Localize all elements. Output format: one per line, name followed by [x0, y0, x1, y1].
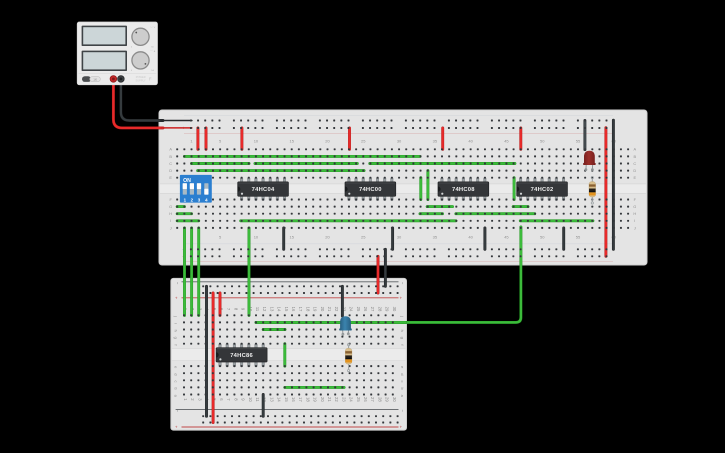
svg-text:10: 10	[254, 138, 259, 143]
svg-text:55: 55	[576, 235, 581, 240]
svg-text:C: C	[169, 161, 172, 166]
svg-text:20: 20	[325, 235, 330, 240]
svg-text:45: 45	[504, 138, 509, 143]
svg-text:A: A	[633, 147, 636, 152]
svg-text:20: 20	[320, 397, 325, 402]
svg-text:i: i	[174, 323, 179, 324]
svg-text:35: 35	[433, 235, 438, 240]
svg-text:74HC86: 74HC86	[230, 353, 253, 359]
svg-text:11: 11	[255, 307, 260, 312]
svg-text:E: E	[169, 175, 172, 180]
svg-text:26: 26	[363, 307, 368, 312]
svg-text:SUPPLY: SUPPLY	[136, 78, 146, 82]
svg-text:D: D	[169, 168, 172, 173]
svg-text:E: E	[633, 175, 636, 180]
svg-text:16: 16	[291, 397, 296, 402]
svg-text:25: 25	[361, 138, 366, 143]
svg-text:40: 40	[468, 235, 473, 240]
svg-text:B: B	[633, 154, 636, 159]
svg-text:21: 21	[327, 307, 332, 312]
svg-text:28: 28	[377, 307, 382, 312]
svg-text:+: +	[175, 295, 178, 300]
svg-text:30: 30	[397, 138, 402, 143]
svg-text:15: 15	[289, 235, 294, 240]
svg-text:H: H	[169, 211, 172, 216]
svg-text:74HC02: 74HC02	[531, 187, 554, 193]
svg-text:I: I	[170, 218, 171, 223]
svg-text:28: 28	[377, 397, 382, 402]
svg-text:22: 22	[334, 397, 339, 402]
svg-text:30: 30	[397, 235, 402, 240]
svg-text:D: D	[633, 168, 636, 173]
svg-text:Ϝ: Ϝ	[149, 77, 152, 82]
svg-text:26: 26	[363, 397, 368, 402]
svg-text:30: 30	[392, 307, 397, 312]
svg-text:1/0: 1/0	[93, 77, 97, 81]
svg-text:27: 27	[370, 397, 375, 402]
svg-text:B: B	[169, 154, 172, 159]
svg-text:23: 23	[341, 397, 346, 402]
svg-text:17: 17	[298, 397, 303, 402]
svg-text:g: g	[400, 337, 405, 339]
svg-text:13: 13	[269, 307, 274, 312]
svg-text:30: 30	[392, 397, 397, 402]
svg-text:12: 12	[262, 307, 267, 312]
svg-text:c: c	[174, 381, 179, 383]
svg-text:j: j	[174, 315, 179, 317]
svg-text:11: 11	[255, 397, 260, 402]
svg-text:13: 13	[269, 397, 274, 402]
svg-text:50: 50	[540, 235, 545, 240]
svg-text:29: 29	[385, 307, 390, 312]
svg-text:15: 15	[289, 138, 294, 143]
svg-text:40: 40	[468, 138, 473, 143]
svg-text:+: +	[400, 295, 403, 300]
svg-text:18: 18	[305, 307, 310, 312]
svg-text:21: 21	[327, 397, 332, 402]
svg-text:19: 19	[313, 397, 318, 402]
svg-text:17: 17	[298, 307, 303, 312]
svg-text:c: c	[400, 381, 405, 383]
svg-text:74HC04: 74HC04	[252, 187, 275, 193]
svg-text:I: I	[634, 218, 635, 223]
svg-text:50: 50	[540, 138, 545, 143]
svg-text:14: 14	[277, 397, 282, 402]
svg-text:20: 20	[325, 138, 330, 143]
svg-text:15: 15	[284, 397, 289, 402]
svg-text:C: C	[633, 161, 636, 166]
svg-text:35: 35	[433, 138, 438, 143]
svg-text:27: 27	[370, 307, 375, 312]
svg-text:55: 55	[576, 138, 581, 143]
svg-text:15: 15	[284, 307, 289, 312]
svg-text:g: g	[174, 337, 179, 339]
svg-text:16: 16	[291, 307, 296, 312]
svg-text:d: d	[174, 373, 179, 375]
svg-text:24: 24	[349, 307, 354, 312]
svg-text:19: 19	[313, 307, 318, 312]
svg-text:74HC08: 74HC08	[452, 187, 475, 193]
svg-text:H: H	[633, 211, 636, 216]
svg-text:20: 20	[320, 307, 325, 312]
svg-text:J: J	[634, 225, 636, 230]
svg-text:45: 45	[504, 235, 509, 240]
svg-text:+: +	[400, 425, 403, 430]
svg-text:+: +	[175, 425, 178, 430]
svg-text:29: 29	[385, 397, 390, 402]
svg-text:25: 25	[361, 235, 366, 240]
svg-text:A: A	[169, 147, 172, 152]
svg-text:10: 10	[254, 235, 259, 240]
svg-text:25: 25	[356, 397, 361, 402]
svg-text:18: 18	[305, 397, 310, 402]
svg-text:74HC00: 74HC00	[359, 187, 382, 193]
svg-text:G: G	[169, 204, 172, 209]
svg-text:j: j	[400, 315, 405, 317]
svg-text:J: J	[170, 225, 172, 230]
svg-text:22: 22	[334, 307, 339, 312]
svg-text:25: 25	[356, 307, 361, 312]
svg-text:14: 14	[277, 307, 282, 312]
svg-text:h: h	[174, 330, 179, 332]
svg-text:G: G	[633, 204, 636, 209]
svg-text:10: 10	[248, 397, 253, 402]
svg-text:h: h	[400, 330, 405, 332]
svg-text:d: d	[400, 373, 405, 375]
svg-text:24: 24	[349, 397, 354, 402]
